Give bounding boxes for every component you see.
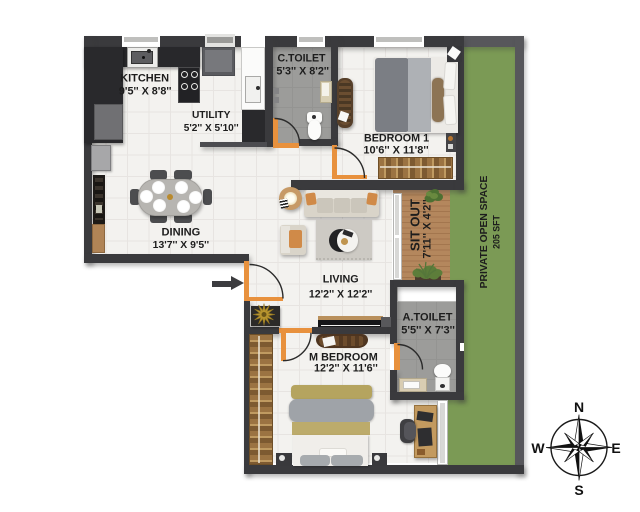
svg-text:W: W: [531, 440, 545, 456]
svg-text:E: E: [611, 440, 620, 456]
svg-text:S: S: [574, 482, 583, 498]
svg-text:N: N: [574, 399, 584, 415]
